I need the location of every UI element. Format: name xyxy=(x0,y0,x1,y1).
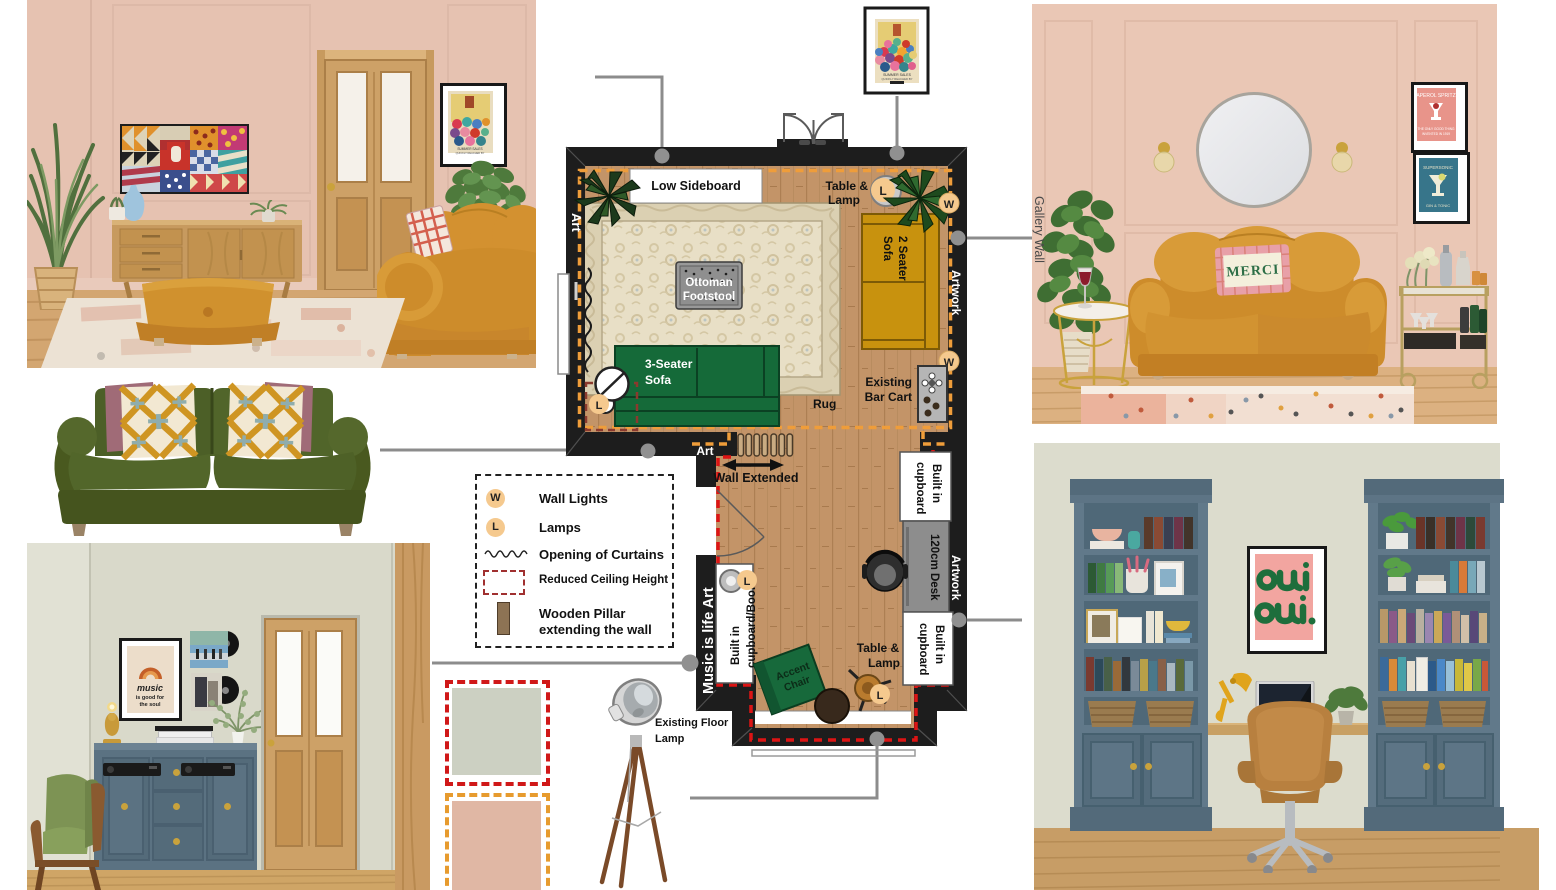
svg-text:L: L xyxy=(877,690,884,702)
svg-text:Lamp: Lamp xyxy=(868,656,900,670)
svg-text:Art: Art xyxy=(696,444,713,458)
svg-text:120cm Desk: 120cm Desk xyxy=(928,534,940,601)
svg-text:L: L xyxy=(596,400,603,412)
svg-text:Table &: Table & xyxy=(826,179,869,193)
svg-text:SUPERSONIC: SUPERSONIC xyxy=(1423,165,1454,170)
svg-text:THE ONLY GOOD THING: THE ONLY GOOD THING xyxy=(1417,127,1455,131)
svg-text:Lamp: Lamp xyxy=(655,733,685,745)
svg-text:3-Seater: 3-Seater xyxy=(645,357,693,371)
svg-text:cupboard: cupboard xyxy=(917,623,929,675)
svg-text:GIN & TONIC: GIN & TONIC xyxy=(1426,203,1450,208)
svg-text:Built in: Built in xyxy=(730,626,742,665)
svg-text:L: L xyxy=(744,576,751,588)
svg-text:MERCI: MERCI xyxy=(1226,263,1280,281)
svg-text:Table &: Table & xyxy=(857,641,900,655)
svg-text:Lamp: Lamp xyxy=(828,193,860,207)
svg-text:cupboard/Bookc: cupboard/Bookc xyxy=(746,577,758,668)
svg-text:QUICKLY REACHED BY: QUICKLY REACHED BY xyxy=(882,77,913,81)
svg-text:Ottoman: Ottoman xyxy=(685,277,732,289)
svg-text:Music is life Art: Music is life Art xyxy=(701,587,717,694)
svg-text:Bar Cart: Bar Cart xyxy=(865,390,912,404)
svg-text:W: W xyxy=(944,199,955,211)
svg-text:Rug: Rug xyxy=(813,397,836,411)
svg-text:INVENTED IN 1919: INVENTED IN 1919 xyxy=(1422,132,1450,136)
svg-text:Existing: Existing xyxy=(865,375,912,389)
svg-text:Artwork: Artwork xyxy=(949,270,963,316)
svg-text:2 Seater: 2 Seater xyxy=(896,236,908,281)
svg-text:APEROL SPRITZ: APEROL SPRITZ xyxy=(1416,93,1455,99)
svg-text:Art: Art xyxy=(569,213,584,232)
svg-text:cupboard: cupboard xyxy=(914,462,926,514)
svg-text:Existing Floor: Existing Floor xyxy=(655,717,729,729)
svg-text:Built in: Built in xyxy=(930,464,942,503)
svg-text:Built in: Built in xyxy=(933,625,945,664)
svg-text:Wall Extended: Wall Extended xyxy=(714,471,799,485)
svg-text:Sofa: Sofa xyxy=(645,373,671,387)
svg-text:Sofa: Sofa xyxy=(881,236,893,262)
svg-text:Artwork: Artwork xyxy=(949,555,963,601)
svg-text:Footstool: Footstool xyxy=(683,291,735,303)
svg-text:L: L xyxy=(879,184,886,198)
svg-text:Low Sideboard: Low Sideboard xyxy=(651,179,741,193)
